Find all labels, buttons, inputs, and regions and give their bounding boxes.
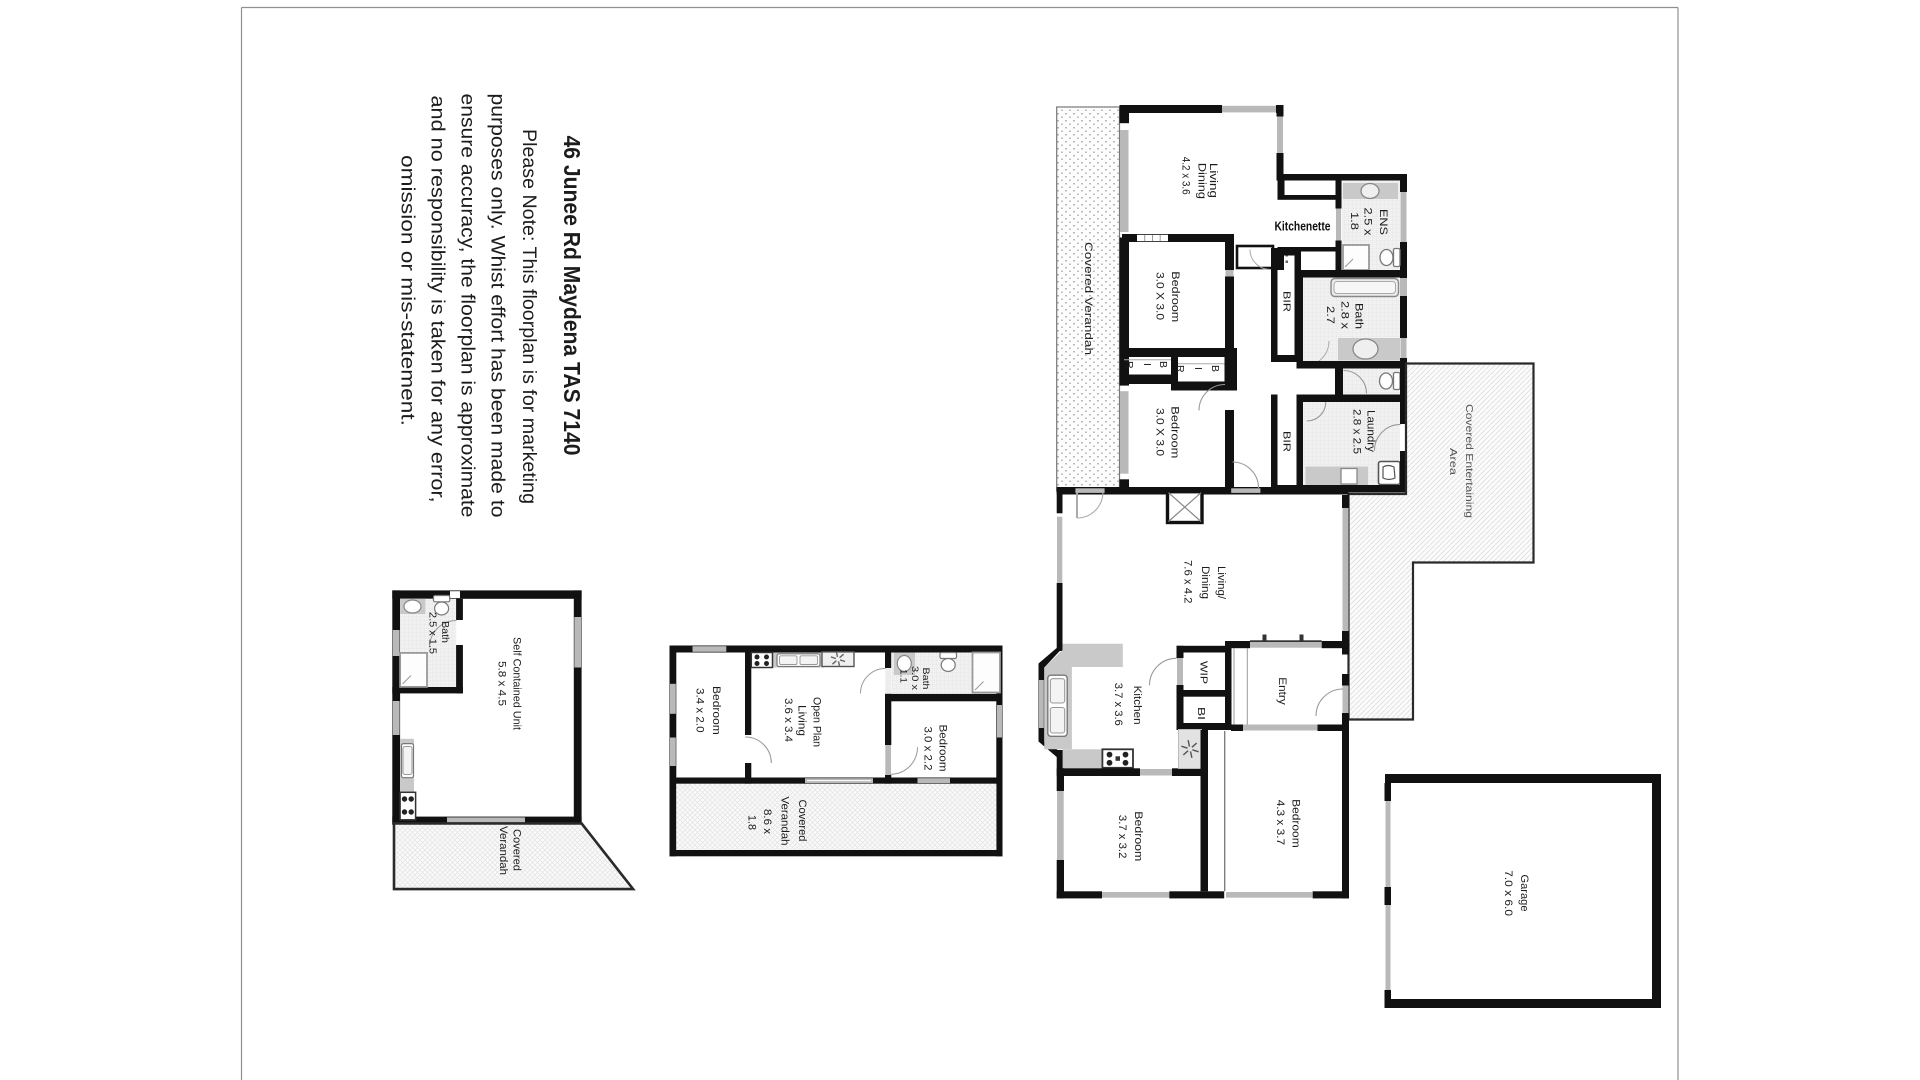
svg-text:Kitchen: Kitchen — [1131, 686, 1143, 725]
svg-text:and no responsibility is taken: and no responsibility is taken for any e… — [427, 96, 449, 503]
svg-text:2.8 x: 2.8 x — [1339, 301, 1351, 330]
svg-text:1.1: 1.1 — [898, 669, 909, 683]
svg-text:4.2 x 3.6: 4.2 x 3.6 — [1179, 157, 1191, 195]
svg-text:Bedroom: Bedroom — [1132, 811, 1144, 861]
svg-text:Covered Entertaining: Covered Entertaining — [1463, 404, 1475, 518]
svg-text:Open Plan: Open Plan — [811, 697, 823, 747]
svg-text:Area: Area — [1447, 448, 1459, 475]
svg-text:3.0 X 3.0: 3.0 X 3.0 — [1153, 272, 1165, 320]
svg-text:omission or mis-statement.: omission or mis-statement. — [397, 155, 419, 426]
svg-text:2.5 x: 2.5 x — [1361, 208, 1373, 237]
svg-text:Garage: Garage — [1518, 875, 1530, 912]
svg-text:5.8 x 4.5: 5.8 x 4.5 — [496, 661, 508, 706]
svg-text:3.0 X 3.0: 3.0 X 3.0 — [1153, 408, 1165, 456]
svg-text:Self Contained Unit: Self Contained Unit — [510, 637, 522, 730]
svg-text:7.6 x 4.2: 7.6 x 4.2 — [1182, 560, 1194, 604]
svg-text:Covered: Covered — [796, 800, 808, 842]
svg-text:2.7: 2.7 — [1324, 306, 1336, 324]
svg-text:Living/: Living/ — [1215, 566, 1227, 600]
svg-text:Entry: Entry — [1276, 677, 1288, 705]
svg-text:46 Junee Rd Maydena TAS 7140: 46 Junee Rd Maydena TAS 7140 — [559, 136, 585, 456]
svg-text:Verandah: Verandah — [779, 797, 791, 846]
svg-text:Dining: Dining — [1199, 566, 1211, 599]
svg-text:B: B — [1157, 361, 1169, 368]
svg-text:2.5 x 1.5: 2.5 x 1.5 — [426, 612, 437, 654]
svg-text:purposes only. Whist effort h: purposes only. Whist effort has been mad… — [487, 94, 509, 518]
svg-text:3.0 x 2.2: 3.0 x 2.2 — [922, 727, 934, 771]
svg-text:I: I — [1192, 367, 1204, 370]
svg-text:3.7 x 3.2: 3.7 x 3.2 — [1116, 815, 1128, 859]
svg-text:R: R — [1123, 361, 1135, 369]
svg-text:Bath: Bath — [1352, 303, 1364, 329]
svg-text:Laundry: Laundry — [1365, 410, 1377, 453]
svg-text:BIR: BIR — [1280, 291, 1292, 312]
svg-text:3.7 x 3.6: 3.7 x 3.6 — [1112, 683, 1124, 726]
svg-text:3.6 x 3.4: 3.6 x 3.4 — [782, 698, 794, 742]
svg-text:Living: Living — [796, 705, 808, 736]
svg-text:Please Note: This floorplan is: Please Note: This floorplan is for marke… — [518, 129, 540, 504]
svg-text:ensure accuracy, the floorplan: ensure accuracy, the floorplan is approx… — [457, 94, 479, 518]
svg-text:Verandah: Verandah — [497, 826, 509, 875]
svg-text:Covered Verandah: Covered Verandah — [1082, 242, 1094, 355]
svg-text:1.8: 1.8 — [1348, 212, 1360, 230]
svg-text:B: B — [1209, 365, 1221, 372]
svg-text:Bedroom: Bedroom — [937, 725, 949, 772]
svg-text:Bedroom: Bedroom — [710, 686, 722, 735]
svg-text:8.6 x: 8.6 x — [761, 809, 773, 835]
svg-text:Dining: Dining — [1196, 163, 1208, 199]
svg-text:Bath: Bath — [439, 621, 450, 643]
svg-text:BI: BI — [1195, 707, 1207, 720]
svg-text:BIR: BIR — [1280, 431, 1292, 452]
svg-text:ENS: ENS — [1377, 209, 1389, 235]
svg-text:Covered: Covered — [511, 829, 523, 871]
svg-text:R: R — [1174, 365, 1186, 373]
svg-text:Kitchenette: Kitchenette — [1275, 219, 1331, 234]
svg-text:7.0 x 6.0: 7.0 x 6.0 — [1502, 870, 1514, 916]
svg-text:Bedroom: Bedroom — [1290, 799, 1302, 848]
svg-text:WIP: WIP — [1198, 661, 1210, 684]
svg-text:3.0 x: 3.0 x — [909, 666, 920, 690]
svg-text:3.4 x 2.0: 3.4 x 2.0 — [694, 688, 706, 733]
svg-text:4.3 x 3.7: 4.3 x 3.7 — [1274, 800, 1286, 845]
svg-text:Bath: Bath — [920, 668, 931, 690]
svg-text:Bedroom: Bedroom — [1169, 406, 1181, 458]
svg-text:2.8 x 2.5: 2.8 x 2.5 — [1351, 409, 1363, 454]
svg-text:Living: Living — [1207, 163, 1219, 198]
svg-text:I: I — [1141, 363, 1153, 366]
svg-text:Bedroom: Bedroom — [1169, 271, 1181, 322]
svg-text:1.8: 1.8 — [745, 815, 757, 830]
